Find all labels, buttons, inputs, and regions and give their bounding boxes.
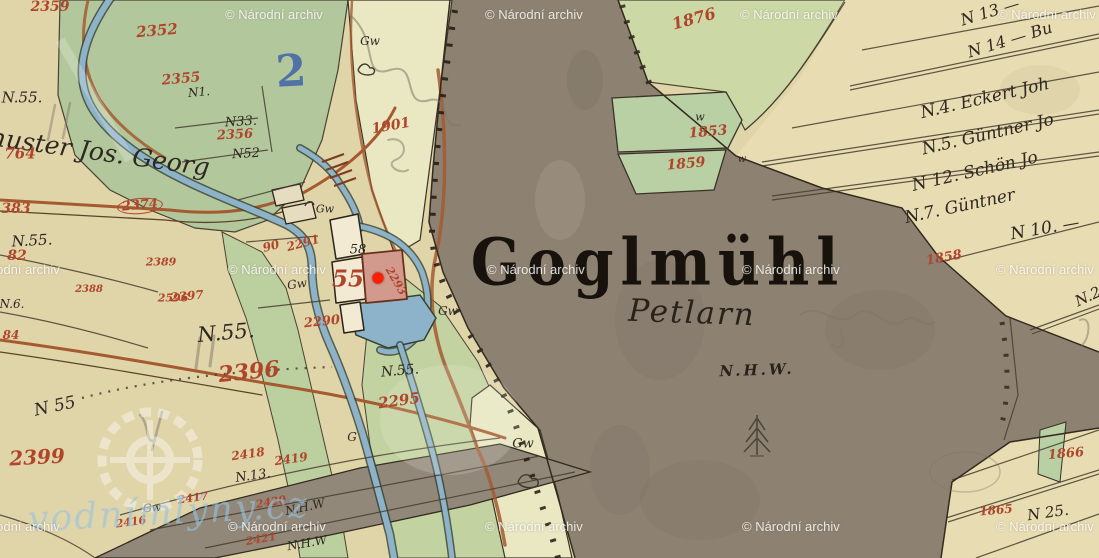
map-label: Gw (286, 277, 307, 292)
map-label: N.55. (11, 232, 53, 249)
map-label: Gw (438, 305, 458, 317)
map-label: 2359 (31, 0, 70, 14)
archive-watermark: © Národní archiv (742, 262, 840, 277)
map-label: N52 (232, 147, 261, 161)
map-label: 383 (1, 202, 30, 216)
archive-watermark: © Národní archiv (485, 519, 583, 534)
archive-watermark: © Národní archiv (0, 262, 60, 277)
map-label: 1859 (666, 155, 706, 172)
map-label: 1865 (979, 503, 1013, 518)
settlement-script-note: Petlarn (628, 293, 757, 333)
archive-watermark: © Národní archiv (228, 262, 326, 277)
map-label: 1866 (1047, 446, 1084, 462)
map-label: 2399 (9, 446, 66, 469)
archive-watermark: © Národní archiv (487, 262, 585, 277)
map-label: 2352 (136, 22, 179, 41)
map-label: 2355 (161, 70, 201, 87)
location-marker[interactable] (373, 273, 384, 284)
map-label: 1853 (688, 123, 728, 140)
map-label: 82 (7, 249, 26, 263)
map-label: 2389 (146, 257, 177, 268)
map-label: 2356 (217, 128, 254, 143)
map-label: Gw (360, 35, 380, 47)
map-label: Gw (316, 204, 334, 215)
map-label: w (738, 155, 747, 165)
archive-watermark: © Národní archiv (228, 519, 326, 534)
map-label: 2396 (217, 358, 280, 386)
archive-watermark: © Národní archiv (485, 7, 583, 22)
archive-watermark: © Národní archiv (996, 262, 1094, 277)
map-label: G (347, 431, 357, 443)
map-label: 58 (350, 244, 367, 257)
map-label: 2388 (75, 285, 103, 295)
map-label: 764 (4, 147, 35, 162)
archive-watermark: © Národní archiv (998, 7, 1096, 22)
archive-watermark: © Národní archiv (742, 519, 840, 534)
map-label: 2397 (170, 289, 204, 304)
map-viewport[interactable]: Goglmühl Petlarn N.H.W. N.55.huster Jos.… (0, 0, 1099, 558)
map-label: N.55. (2, 91, 43, 106)
map-label: N.55. (380, 362, 419, 379)
map-label: N.6. (0, 298, 25, 310)
map-label: w (695, 112, 704, 123)
map-label: 2290 (303, 314, 340, 331)
map-label: 55 (332, 268, 364, 291)
map-label: N1. (188, 85, 211, 99)
elevation-note: N.H.W. (719, 360, 795, 381)
map-label: Gw (512, 438, 534, 451)
archive-watermark: © Národní archiv (996, 519, 1094, 534)
archive-watermark: © Národní archiv (225, 7, 323, 22)
archive-watermark: © Národní archiv (740, 7, 838, 22)
map-label: 2 (275, 49, 308, 95)
map-label: 84 (3, 329, 20, 341)
archive-watermark: © Národní archiv (0, 519, 60, 534)
map-label: N.55. (197, 320, 256, 346)
watermark-glow (380, 365, 520, 475)
